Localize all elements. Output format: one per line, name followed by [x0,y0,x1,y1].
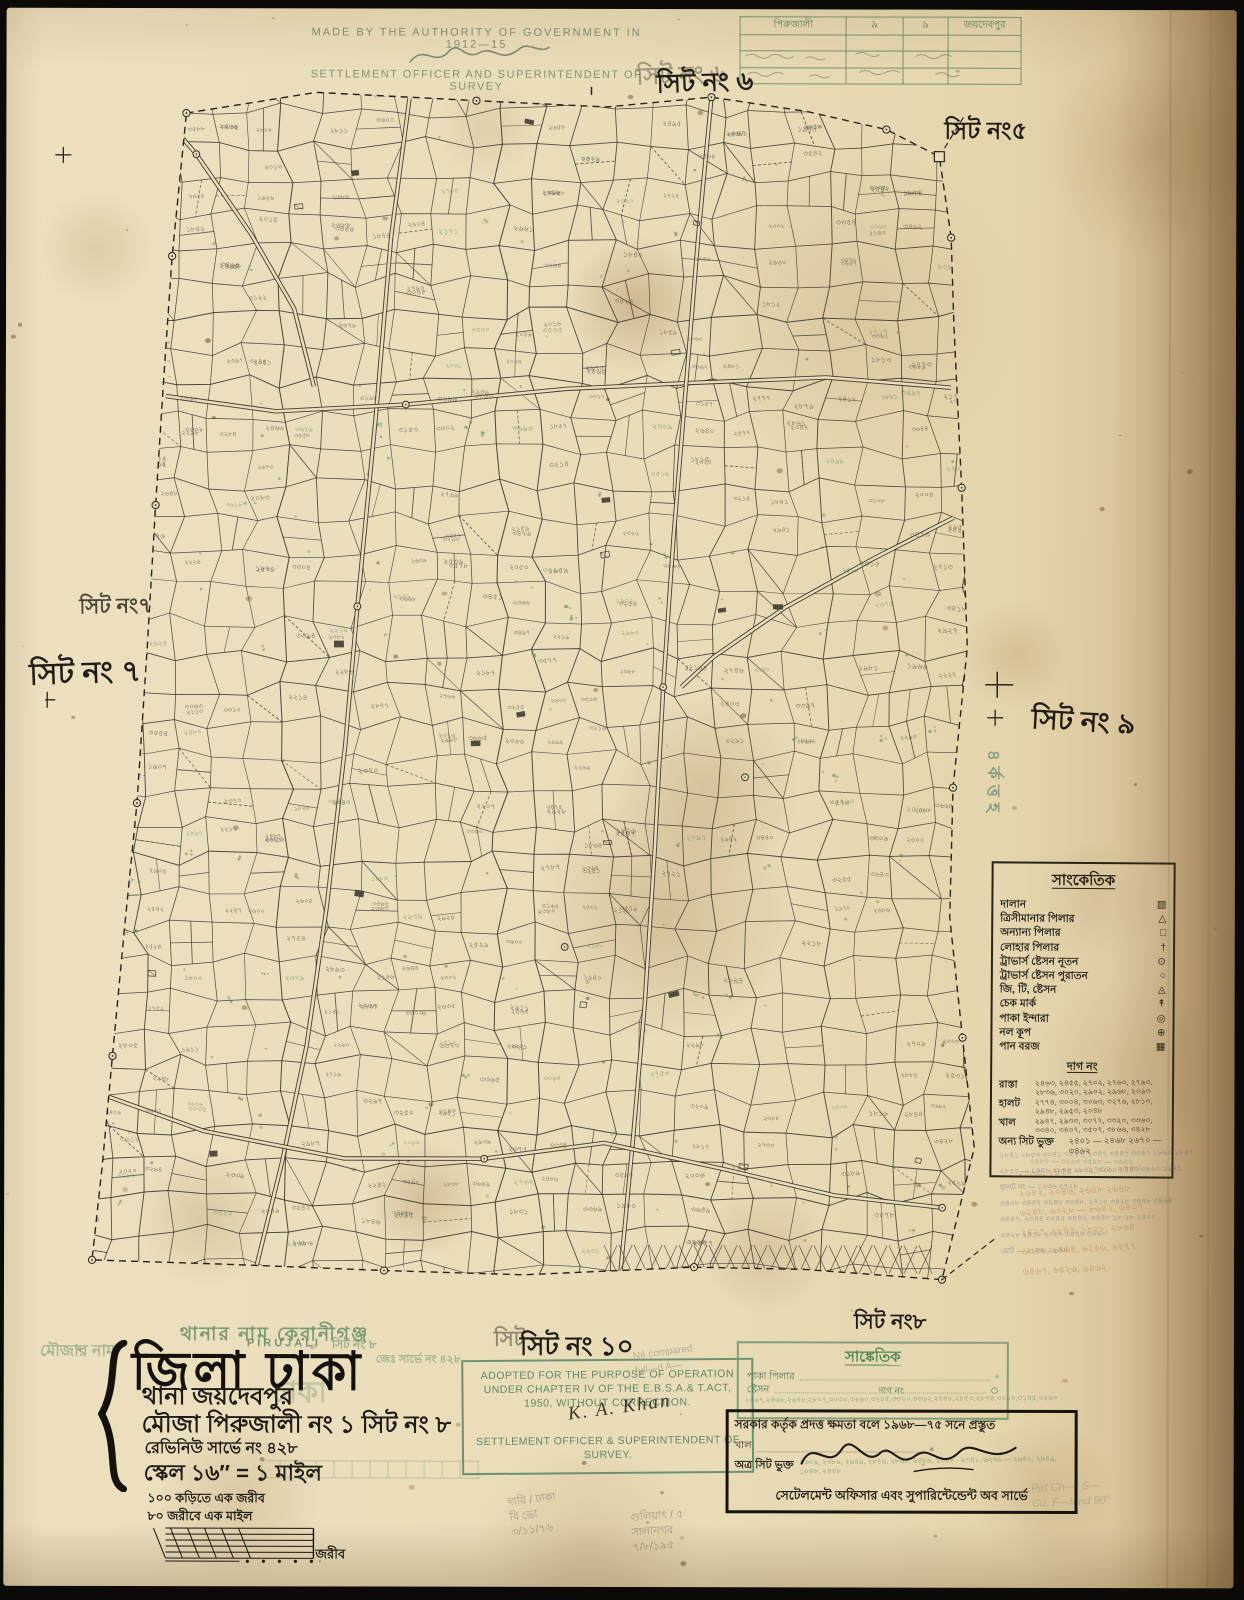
svg-text:২৫২৯: ২৫২৯ [947,1179,965,1187]
svg-text:১৮২১: ১৮২১ [881,393,897,401]
svg-text:২৩০২: ২৩০২ [440,974,456,982]
svg-text:৩৩৭৮: ৩৩৭৮ [116,767,137,777]
svg-text:২৬২৫: ২৬২৫ [189,193,205,200]
svg-text:১৯৭৮: ১৯৭৮ [834,905,851,913]
svg-text:৩৩৬১: ৩৩৬১ [872,333,889,341]
svg-text:৩৩১২: ৩৩১২ [224,706,241,714]
svg-text:৩৪৭৬: ৩৪৭৬ [512,529,531,539]
svg-text:৩০৬৪: ৩০৬৪ [544,1075,561,1082]
svg-text:২৭৭৭: ২৭৭৭ [752,393,771,402]
svg-text:২৯২৮: ২৯২৮ [546,806,567,816]
svg-text:২৮০৫: ২৮০৫ [118,1041,138,1050]
svg-text:৩১২২: ৩১২২ [248,293,267,303]
svg-text:৩৬১৮: ৩৬১৮ [119,1135,141,1145]
svg-text:১৮০০: ১৮০০ [184,975,202,983]
svg-text:২৬৫৮: ২৬৫৮ [548,124,566,132]
mini-legend-title: সাঙ্কেতিক [747,1345,999,1371]
svg-text:২৩০২: ২৩০২ [768,223,784,230]
svg-text:২৫২৪: ২৫২৪ [144,943,161,951]
svg-text:১৯৭০: ১৯৭০ [77,425,97,435]
svg-text:২৪৯৮: ২৪৯৮ [825,456,845,466]
svg-text:৩২৯৭: ৩২৯৭ [363,1096,383,1105]
svg-text:২৫১৭: ২৫১৭ [372,89,393,99]
svg-text:৩০১৮: ৩০১৮ [80,624,98,632]
svg-text:২৬৮৬: ২৬৮৬ [873,907,891,914]
svg-text:২৩০১: ২৩০১ [978,321,997,330]
svg-text:১৮১২: ১৮১২ [762,300,781,309]
svg-text:২৫৬৪: ২৫৬৪ [698,153,715,161]
svg-text:৩৩৫২: ৩৩৫২ [480,1285,496,1293]
svg-text:১৮৫৯: ১৮৫৯ [659,329,678,336]
svg-text:২২২৭: ২২২৭ [938,671,957,680]
svg-text:৩১৫৩: ৩১৫৩ [398,425,418,434]
svg-text:৩০৭৮: ৩০৭৮ [874,1211,895,1220]
svg-text:১৮৮৩: ১৮৮৩ [371,876,387,883]
svg-text:৩২৪১: ৩২৪১ [951,911,971,920]
svg-text:১৯৫৯: ১৯৫৯ [44,904,55,912]
svg-text:২২৬৯: ২২৬৯ [574,764,591,771]
svg-text:২৩৯৭: ২৩৯৭ [226,357,244,365]
svg-text:২৪৮০: ২৪৮০ [184,729,202,737]
svg-text:২৮৬৬: ২৮৬৬ [764,1279,782,1287]
svg-text:২১৯৪: ২১৯৪ [689,663,708,672]
svg-text:১৮৪২: ১৮৪২ [186,224,205,234]
gt-station-icon: ◬ [1151,984,1166,998]
svg-text:৩০০০: ৩০০০ [402,88,420,96]
ink-signature [794,1427,1024,1479]
svg-text:২০০৪: ২০০৪ [506,359,522,366]
svg-text:২৫২১: ২৫২১ [582,905,598,911]
legend-box: সাংকেতিক দালান▨ ত্রিসীমানার পিলার△ অন্যা… [989,861,1175,1179]
svg-text:৩৬৯২: ৩৬৯২ [930,1103,946,1111]
trijunction-pillar-icon: △ [1151,913,1166,927]
svg-text:২৪৮৬: ২৪৮৬ [541,1176,559,1184]
legend-item: চেক মার্ক↟ [1000,997,1166,1012]
svg-text:৩২৪৫: ৩২৪৫ [249,358,267,366]
svg-text:২৭৬৪: ২৭৬৪ [441,188,458,196]
svg-text:২৭৬৬: ২৭৬৬ [439,693,455,701]
svg-text:২৭৫৪: ২৭৫৪ [286,934,306,943]
svg-text:২২৪০: ২২৪০ [44,936,61,946]
svg-text:৩৩৬৭: ৩৩৬৭ [691,364,708,372]
svg-text:২৯৮০: ২৯৮০ [621,629,640,637]
mini-legend-numbers: ২৪৬৭,২৪৬৮,২৬৪৮,২৮০৭,৩০৩০,৩২৬০,৩২৮৫,৩৩২০,… [745,1395,985,1406]
tube-well-icon: ⊕ [1150,1026,1165,1040]
svg-text:১৮৭০: ১৮৭০ [255,564,276,574]
svg-text:২৪২৮: ২৪২৮ [795,86,816,96]
svg-text:২৯০৪: ২৯০৪ [407,221,425,229]
check-mark-icon: ↟ [1151,998,1166,1012]
stamp-line: SETTLEMENT OFFICER & SUPERINTENDENT OF [464,1433,752,1449]
svg-text:২৫৪২: ২৫৪২ [147,906,164,913]
svg-text:২৬১৬: ২৬১৬ [187,1100,203,1108]
svg-text:২৬৭৮: ২৬৭৮ [338,321,357,330]
svg-text:২১৬১: ২১৬১ [762,1279,778,1287]
svg-text:২০২০: ২০২০ [616,198,634,205]
svg-text:৩৩৬৯: ৩৩৬৯ [583,1204,603,1214]
green-survey-note: জেঃ সার্ভে নং ৪২৮ [376,1350,461,1369]
paper: MADE BY THE AUTHORITY OF GOVERNMENT IN 1… [3,8,1236,1589]
svg-text:৩১৬২: ৩১৬২ [542,903,560,910]
svg-text:২৪১৬: ২৪১৬ [111,832,129,839]
svg-text:২৫৩৬: ২৫৩৬ [443,557,463,566]
svg-text:২৩৩৯: ২৩৩৯ [225,1170,245,1180]
svg-text:২৩৭৭: ২৩৭৭ [508,1144,528,1154]
svg-text:৩১৩৫: ৩১৩৫ [44,975,60,983]
svg-text:২৭৮৭: ২৭৮৭ [406,284,425,293]
svg-text:২৮৮৮: ২৮৮৮ [44,186,62,196]
svg-text:৩২৬৪: ৩২৬৪ [145,1166,163,1174]
svg-text:২৫৩৩: ২৫৩৩ [942,1038,958,1046]
svg-text:১৮০৮: ১৮০৮ [118,876,134,884]
plot-number-heading: দাগ নং [999,1058,1165,1078]
svg-text:২১৪৬: ২১৪৬ [376,974,395,982]
vertical-green-note: ৪র্কত্তহ [979,750,1007,818]
svg-text:২৯৪১: ২৯৪১ [773,527,791,535]
svg-text:২২৯৩: ২২৯৩ [900,734,918,742]
svg-text:২৫৩৬: ২৫৩৬ [831,1103,847,1111]
title-brace [94,1340,130,1492]
svg-text:৩৩০২: ৩৩০২ [436,424,455,433]
svg-text:৩০৫৬: ৩০৫৬ [805,123,821,131]
svg-text:২৬৮৬: ২৬৮৬ [292,1239,313,1248]
svg-text:২৬২২: ২৬২২ [551,698,567,705]
svg-text:২৬৩৫: ২৬৩৫ [437,1001,456,1011]
mini-legend-box: সাঙ্কেতিক পাকা পিলার▫ ষ্টেসন○ দাগ নং ২৪৬… [737,1341,1009,1420]
svg-text:১৮৫৭: ১৮৫৭ [549,423,567,431]
svg-text:৩৪৫১: ৩৪৫১ [482,592,503,602]
svg-text:২৮৩৩: ২৮৩৩ [869,183,890,193]
svg-text:৩৩৩৬: ৩৩৩৬ [44,390,60,398]
svg-text:৩২৫০: ৩২৫০ [394,1108,414,1117]
svg-text:১৮৪৬: ১৮৪৬ [361,1216,381,1226]
svg-text:১৯৪০: ১৯৪০ [583,974,601,982]
svg-text:২৭৩০: ২৭৩০ [259,90,275,98]
svg-text:২০৪২: ২০৪২ [790,424,809,432]
svg-text:২৮১৭: ২৮১৭ [692,1143,710,1151]
svg-text:২৫২৯: ২৫২৯ [581,155,601,164]
adoption-stamp: ADOPTED FOR THE PURPOSE OF OPERATION UND… [461,1358,754,1475]
svg-text:৩৬৪৪: ৩৬৪৪ [912,425,929,433]
svg-text:৩৬৬৪: ৩৬৬৪ [935,803,954,811]
svg-text:৩২৮৪: ৩২৮৪ [219,431,236,438]
svg-text:২২১৭: ২২১৭ [220,826,237,833]
svg-text:২৩৭৯: ২৩৭৯ [284,973,304,982]
svg-text:২৩৬৮: ২৩৬৮ [802,1281,822,1291]
svg-text:২৬১৭: ২৬১৭ [981,463,1000,471]
svg-text:২২২৬: ২২২৬ [184,559,200,567]
svg-text:৩৬৪৩: ৩৬৪৩ [870,869,889,879]
svg-text:২৫১২: ২৫১২ [439,1039,456,1047]
svg-text:২৯৩৯: ২৯৩৯ [474,1139,492,1147]
svg-text:৩৫৬৩: ৩৫৬৩ [47,732,65,739]
svg-text:১৯২৬: ১৯২৬ [257,195,275,203]
svg-text:৩০১১: ৩০১১ [265,837,282,845]
svg-text:১৮৭৪: ১৮৭৪ [372,231,391,241]
svg-text:১৯০৭: ১৯০৭ [147,761,167,771]
svg-text:২৯৫১: ২৯৫১ [438,1110,456,1118]
officer-signature-scribble [405,35,555,71]
svg-text:৩২৫৫: ৩২৫৫ [832,874,852,884]
svg-text:৩৫৭৭: ৩৫৭৭ [538,655,558,665]
svg-text:৩৫২৮: ৩৫২৮ [983,635,1005,644]
table-header-thana: জয়দেবপুর [948,17,1021,35]
svg-text:২২৯৮: ২২৯৮ [686,1041,705,1049]
svg-text:৩১০৮: ৩১০৮ [868,498,884,505]
sheet-label-left-stamp: সিট নং৭ [79,589,152,625]
legend-title: সাংকেতিক [1000,868,1166,894]
svg-text:২০৩১: ২০৩১ [445,362,462,370]
svg-text:২৯১২: ২৯১২ [832,87,850,95]
svg-text:৩৩৫২: ৩৩৫২ [44,995,59,1002]
svg-text:১৯০৭: ১৯০৭ [551,86,571,96]
svg-text:২৩৫৪: ২৩৫৪ [147,455,167,464]
svg-text:২৩৪৯: ২৩৪৯ [695,256,711,263]
svg-text:১৮১৩: ১৮১৩ [870,355,891,365]
svg-text:২৯০৫: ২৯০৫ [149,867,167,875]
svg-text:৩০৬০: ৩০৬০ [543,565,563,575]
authorization-footer: সেটেলমেন্ট অফিসার এবং সুপারিন্টেন্ডেন্ট … [729,1487,1075,1508]
svg-text:৩৩৫০: ৩৩৫০ [112,181,133,191]
svg-text:২৫৫৭: ২৫৫৭ [693,1239,713,1248]
svg-text:৩৪৯৭: ৩৪৯৭ [901,388,921,398]
svg-text:৩৩০০: ৩৩০০ [405,1010,423,1018]
svg-text:৩৬৪৯: ৩৬৪৯ [691,1205,711,1215]
svg-text:২৩৮৮: ২৩৮৮ [620,669,636,675]
svg-text:২০৯৭: ২০৯৭ [686,833,707,842]
svg-text:৩৪৪৪: ৩৪৪৪ [335,224,355,234]
svg-text:২০০৪: ২০০৪ [915,490,934,499]
svg-text:২২৮২: ২২৮২ [945,464,965,473]
svg-text:২২১৮: ২২১৮ [801,938,823,948]
svg-text:২১৮২: ২১৮২ [217,1278,233,1285]
table-header-no1: ৯ [846,17,902,35]
svg-text:২৬৭৫: ২৬৭৫ [47,1001,63,1008]
svg-text:৩৬৪৯: ৩৬৪৯ [472,1181,491,1189]
svg-text:২২৩১: ২২৩১ [581,1248,599,1255]
svg-text:২৭১৯: ২৭১৯ [325,1071,341,1078]
svg-text:২৪৮১: ২৪৮১ [723,363,740,371]
svg-text:৩৫০০: ৩৫০০ [472,327,490,334]
plot-number-row: খাল২৯৪৭, ২৯৩৩, ৩০৭৭, ৩৩২০, ৩৩৬০, ৩৩৪০, ৩… [999,1116,1165,1135]
svg-text:৩৩১০: ৩৩১০ [979,93,999,103]
svg-text:৩১৩৮: ৩১৩৮ [978,398,994,406]
legend-item: ট্রাভার্স ষ্টেসন নূতন⊙ [1000,954,1166,969]
svg-text:৩৫৯০: ৩৫৯০ [614,1170,633,1179]
svg-text:৩৬৪৮: ৩৬৪৮ [754,666,771,674]
svg-text:২২৯৩: ২২৯৩ [333,1042,349,1049]
svg-text:২৯৬৪: ২৯৬৪ [552,86,571,94]
svg-text:২৭৭৩: ২৭৭৩ [911,360,932,369]
svg-text:৩২৬৬: ৩২৬৬ [221,124,239,131]
svg-text:৩৫৯০: ৩৫৯০ [402,1179,419,1187]
svg-text:২৬৮৬: ২৬৮৬ [332,194,350,202]
svg-text:২৭৬৯: ২৭৬৯ [440,491,459,499]
svg-text:২৮৪০: ২৮৪০ [833,1288,850,1296]
svg-text:২০৩৭: ২০৩৭ [357,1000,377,1011]
svg-text:৩৫৫৮: ৩৫৫৮ [294,432,310,439]
svg-text:১৯১০: ১৯১০ [44,354,59,363]
svg-text:৩২৫৮: ৩২৫৮ [396,1210,414,1218]
svg-text:২২৪৮: ২২৪৮ [152,1075,170,1083]
green-ruler-echo [262,1460,480,1478]
svg-text:২৬২৫: ২৬২৫ [149,640,168,648]
svg-text:২৮৭৯: ২৮৭৯ [793,402,814,411]
svg-text:৩৬০০: ৩৬০০ [506,939,523,947]
pencil-note: দায়ি / ঢাকা বি ভো ৩/১১/৭৬ [507,1490,560,1540]
svg-text:৩৩৫৬: ৩৩৫৬ [969,1168,989,1178]
cadastral-map-canvas: ২৩২৫২০১৫২৪৬৬২৫৩১২৭৬৬১৯৮১৩৬৪৮৩১৬৫২৩৫৪৩৪৯২… [44,86,1017,1303]
svg-text:৩১৭১: ৩১৭১ [250,1270,270,1280]
legend-item: পাকা ইন্দারা◎ [999,1011,1165,1026]
svg-text:৩১১৫: ৩১১৫ [111,222,130,230]
svg-text:২৭২১: ২৭২১ [661,868,681,878]
svg-text:৩৪৯৭: ৩৪৯৭ [514,629,531,636]
legend-item: নল কূপ⊕ [999,1025,1165,1040]
svg-text:৩২১৫: ৩২১৫ [44,1041,54,1048]
paper-crease [1166,10,1171,1588]
svg-text:২২৭০: ২২৭০ [44,1105,58,1113]
svg-text:২৮৭৭: ২৮৭৭ [371,703,389,711]
svg-text:৩১৪২: ৩১৪২ [292,1281,310,1288]
svg-text:২৯২৪: ২৯২৪ [437,914,455,922]
svg-text:১৯১১: ১৯১১ [181,1046,199,1054]
svg-text:১৮৬৪: ১৮৬৪ [584,843,602,850]
svg-text:২৮১১: ২৮১১ [330,128,348,135]
svg-text:৩৪২২: ৩৪২২ [213,1208,233,1218]
svg-text:২৬০৫: ২৬০৫ [295,898,312,905]
table-handwriting-scribbles [739,34,1021,85]
svg-text:২১৬৬: ২১৬৬ [116,726,135,734]
svg-text:১৮৫২: ১৮৫২ [111,119,132,129]
legend-item: দালান▨ [1000,897,1166,912]
svg-text:৩১৭৬: ৩১৭৬ [112,929,128,936]
svg-text:৩২৫৭: ৩২৫৭ [979,529,996,536]
svg-text:৩১৫৭: ৩১৫৭ [44,632,58,642]
svg-text:২১৮৭: ২১৮৭ [476,668,496,677]
svg-text:৩৪৭৮: ৩৪৭৮ [840,257,856,265]
svg-text:২৯৪২: ২৯৪২ [720,836,737,843]
iron-pillar-icon: † [1151,941,1166,955]
svg-text:৩৪৯৭: ৩৪৯৭ [44,932,60,942]
svg-text:৩০১২: ৩০১২ [589,393,605,401]
svg-text:৩৪৬২: ৩৪৬২ [903,222,923,231]
svg-text:৩৪৩৯: ৩৪৩৯ [44,1144,57,1152]
svg-text:৩৫১৬: ৩৫১৬ [651,471,670,478]
svg-text:২৮৩৮: ২৮৩৮ [443,1182,459,1189]
svg-text:২০১৬: ২০১৬ [543,321,562,329]
svg-text:২৮৮৫: ২৮৮৫ [900,1072,917,1080]
stamp-line: UNDER CHAPTER IV OF THE E.B.S.A.& T.ACT, [463,1381,751,1397]
svg-text:২৭৮৭: ২৭৮৭ [540,862,561,872]
svg-text:১৮২৬: ১৮২৬ [616,826,636,836]
svg-text:২৭০৯: ২৭০৯ [906,1039,926,1049]
svg-text:১৯৮০: ১৯৮০ [616,1201,636,1211]
svg-text:২৯৭৩: ২৯৭৩ [257,464,273,471]
svg-text:২২১৯: ২২১৯ [553,633,570,641]
svg-text:২৪১৭: ২৪১৭ [837,395,856,404]
svg-text:১৯৩৯: ১৯৩৯ [327,1277,345,1285]
svg-text:২৪১০: ২৪১০ [690,1286,706,1294]
svg-text:৩৪২৮: ৩৪২৮ [934,1136,954,1146]
svg-text:২৩৪৬: ২৩৪৬ [937,262,957,272]
svg-text:৩৪৭৯: ৩৪৭৯ [909,530,930,540]
svg-text:২৯৪৪: ২৯৪৪ [979,835,998,844]
svg-text:২১৪০: ২১৪০ [978,95,998,105]
svg-text:২১৩৮: ২১৩৮ [220,86,242,90]
svg-text:২৬০০: ২৬০০ [248,908,265,916]
svg-text:২৭১৩: ২৭১৩ [933,562,953,571]
svg-text:৩৬০০: ৩৬০০ [376,115,395,124]
svg-text:২৯৬০: ২৯৬০ [768,260,786,267]
svg-text:২৩৭০: ২৩৭০ [358,766,379,776]
corner-index-table: পিরুজালী ৯ ৯ জয়দেবপুর [739,16,1021,85]
scanned-cadastral-sheet: MADE BY THE AUTHORITY OF GOVERNMENT IN 1… [0,0,1244,1600]
legend-item: জি, টি, ষ্টেসন◬ [1000,983,1166,998]
svg-text:২৭৬০: ২৭৬০ [835,797,855,807]
svg-text:২২১৪: ২২১৪ [288,692,308,702]
svg-text:২৩৬৭: ২৩৬৭ [49,972,67,979]
svg-text:১৮১৬: ১৮১৬ [868,1109,888,1119]
svg-text:২৩৫৯: ২৩৫৯ [116,560,133,567]
svg-text:৩৩৬৬: ৩৩৬৬ [513,600,531,608]
svg-text:২৫৬৫: ২৫৬৫ [511,1008,529,1015]
svg-text:৩৬৯৩: ৩৬৯৩ [512,423,533,433]
svg-text:৩২৮১: ৩২৮১ [800,1282,819,1290]
svg-text:২০০২: ২০০২ [543,190,561,198]
svg-text:৩৬১৮: ৩৬১৮ [226,502,243,509]
svg-text:৩৪৯২: ৩৪৯২ [45,591,63,599]
svg-text:৩১৫৭: ৩১৫৭ [695,400,713,408]
svg-text:৩২১৫: ৩২১৫ [733,496,750,503]
svg-text:২৮৪৪: ২৮৪৪ [904,1109,924,1119]
svg-text:২৯৮৭: ২৯৮৭ [301,1139,320,1148]
svg-text:২৭৪৬: ২৭৪৬ [724,666,744,675]
svg-text:২১৪১: ২১৪১ [324,1008,341,1016]
svg-text:২১২০: ২১২০ [613,908,631,915]
svg-text:২১৭৭: ২১৭৭ [943,392,963,402]
svg-text:২৬৬১: ২৬৬১ [513,224,534,234]
svg-text:৩১৮৯: ৩১৮৯ [841,1168,861,1178]
rust-ink-notes: ২৪৬৩, ২৪৫৫ — ২৭০২, ২৭৬০ ২৬৪২, ২০৪৬, ২৬৪৮… [1017,1155,1213,1281]
svg-text:২৭৯৭: ২৭৯৭ [81,1134,99,1142]
svg-text:২৯৪৯: ২৯৪৯ [393,593,411,600]
svg-text:৩০৬০: ৩০৬০ [870,223,886,231]
svg-text:১৯৬৬: ১৯৬৬ [907,661,928,671]
svg-text:২৭৫৩: ২৭৫৩ [650,1069,670,1079]
svg-text:৩১২৮: ৩১২৮ [44,1278,54,1286]
svg-text:২০৫৩: ২০৫৩ [509,562,529,571]
svg-text:২৭২৫: ২৭২৫ [663,193,680,201]
svg-text:২৬৪০: ২৬৪০ [695,425,715,435]
svg-text:৩২৯১: ৩২৯১ [725,736,744,746]
svg-text:২৭০১: ২৭০১ [150,161,171,171]
svg-text:৩১৯৩: ৩১৯৩ [180,395,198,403]
svg-text:২৪৯৫: ২৪৯৫ [662,119,681,129]
other-pillar-icon: □ [1151,927,1166,941]
legend-item: পান বরজ▦ [999,1039,1165,1054]
svg-text:২৭৩০: ২৭৩০ [757,1142,774,1150]
svg-text:২৫২৯: ২৫২৯ [468,940,488,949]
svg-text:২৯৩৯: ২৯৩৯ [402,912,422,922]
svg-text:২০২০: ২০২০ [118,1168,137,1176]
svg-text:২০৭৪: ২০৭৪ [111,1274,130,1283]
svg-text:২৫৩১: ২৫৩১ [945,1070,965,1080]
svg-text:২০৬২: ২০৬২ [109,835,126,842]
svg-text:২৩১৫: ২৩১৫ [859,559,880,569]
svg-text:৩৩৩০: ৩৩৩০ [466,828,483,836]
svg-text:২৮৬০: ২৮৬০ [687,336,704,344]
